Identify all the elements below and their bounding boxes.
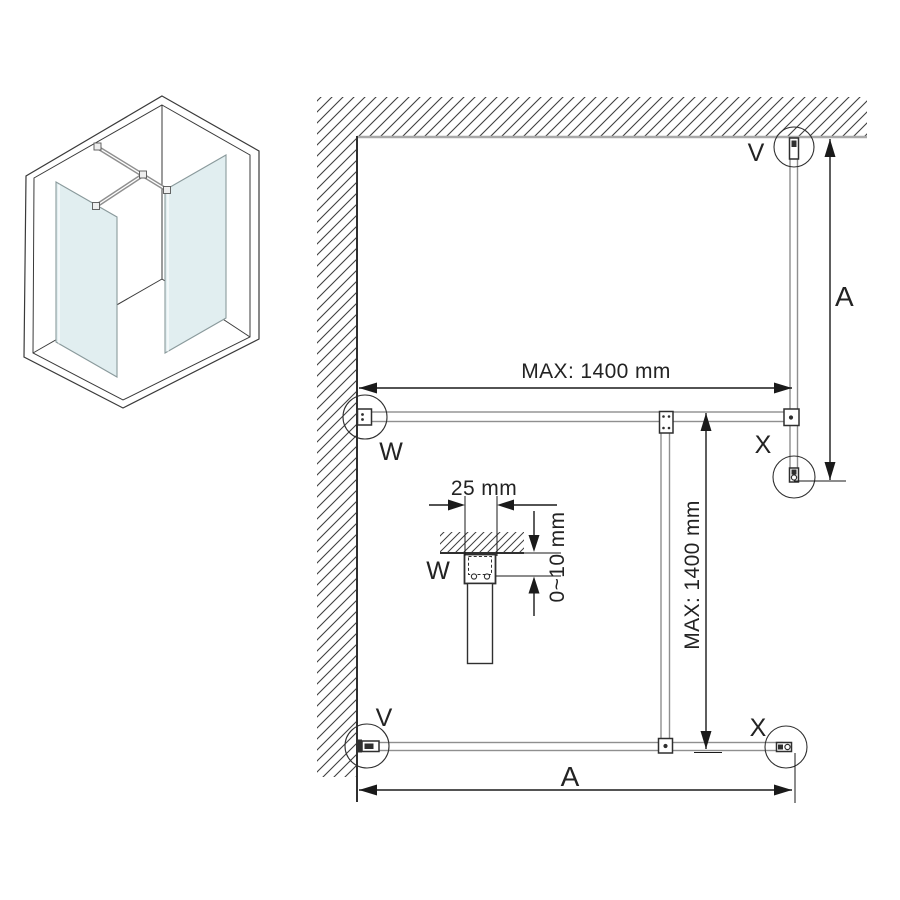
drawing-svg: MAX: 1400 mm MAX: 1400 mm A A V V W W X … (0, 0, 900, 900)
bar-glass-clamp-right-3d (164, 187, 171, 194)
installation-drawing: MAX: 1400 mm MAX: 1400 mm A A V V W W X … (0, 0, 900, 900)
bar-tee-connector-3d (140, 171, 147, 178)
glass-panel-left (56, 182, 117, 377)
dim-text-a-right: A (835, 281, 854, 312)
detail-screw-right (484, 574, 489, 579)
glass-panel-bottom-plan (362, 743, 782, 751)
detail-support-bar (468, 584, 493, 664)
detail-wall-hatch (440, 532, 524, 553)
end-cap-x-bottom (777, 743, 792, 752)
wall-bracket-v-top (790, 138, 799, 159)
tee-connector-top (660, 412, 674, 434)
end-cap-x-right (790, 468, 799, 482)
support-bar-plan (368, 412, 788, 422)
dim-text-a-bottom: A (561, 761, 580, 792)
bar-glass-clamp-left-3d (93, 203, 100, 210)
label-x-bottom: X (750, 714, 767, 742)
detail-bracket-body (465, 555, 496, 584)
dim-text-max-depth: MAX: 1400 mm (681, 500, 704, 650)
dim-text-max-width: MAX: 1400 mm (521, 360, 671, 383)
dim-text-bracket-width: 25 mm (451, 477, 517, 500)
bar-wall-connector-3d (94, 143, 101, 150)
support-bar-branch-3d-core (96, 175, 143, 206)
shower-enclosure-3d-icon (24, 96, 259, 408)
support-bar-inner-plan (661, 420, 670, 743)
wall-bracket-w (358, 409, 372, 425)
wall-section-hatch (317, 97, 867, 777)
label-x-right: X (755, 431, 772, 459)
dimension-lines (359, 139, 846, 803)
label-v-bottom: V (376, 704, 393, 732)
bar-connector-right (784, 409, 799, 426)
bar-connector-bottom (659, 739, 673, 754)
label-w-detail: W (426, 557, 450, 585)
label-w-wall: W (379, 438, 403, 466)
label-v-top: V (748, 139, 765, 167)
wall-bracket-v-bottom (358, 740, 380, 753)
glass-panel-right (165, 155, 226, 353)
dimension-arrowheads (359, 139, 836, 796)
dim-text-wall-gap: 0~10 mm (546, 512, 569, 603)
detail-screw-left (471, 574, 476, 579)
